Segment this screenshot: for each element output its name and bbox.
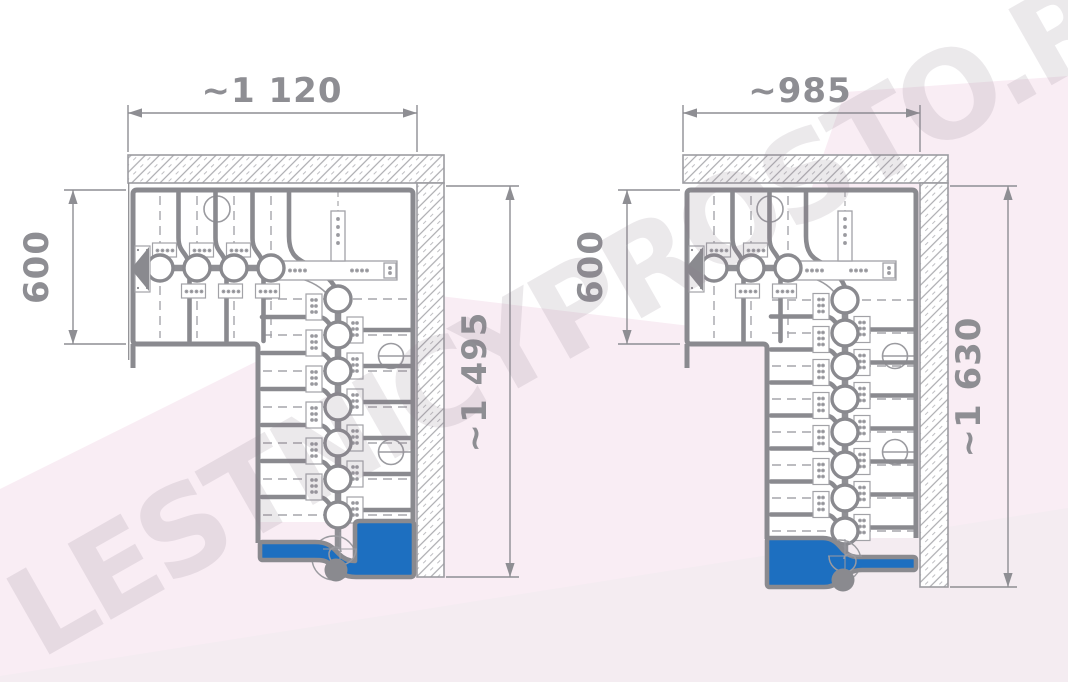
staircase-plans-canvas: ~1 120 600 ~1 495 ~985 600 ~1 630 LESTNI… [0,0,1068,682]
wall-top [128,155,444,183]
plate [813,492,829,518]
wall-right [920,183,948,587]
module-circle [832,485,858,511]
module-circle [832,452,858,478]
center-pole [325,559,348,582]
plate [813,327,829,353]
plate [306,330,322,356]
plate [813,294,829,320]
dim-depth-label-left: 600 [17,230,57,304]
plate [813,459,829,485]
module-circle [832,353,858,379]
plate [813,426,829,452]
dim-width-label-left: ~1 120 [202,71,343,111]
module-circle [221,255,247,281]
module-circle [832,419,858,445]
staircase-plans-svg: ~1 120 600 ~1 495 ~985 600 ~1 630 LESTNI… [0,0,1068,682]
module-circle [832,386,858,412]
module-circle [325,322,351,348]
plate [813,360,829,386]
module-circle [832,287,858,313]
plate [306,294,322,320]
module-circle [147,255,173,281]
plate [813,393,829,419]
dim-length-label-right: ~1 630 [949,317,989,458]
beam-end-plate [883,263,895,278]
module-circle [184,255,210,281]
module-circle [832,320,858,346]
module-circle [325,286,351,312]
module-circle [258,255,284,281]
beam-end-plate [384,263,396,278]
center-pole [832,569,855,592]
